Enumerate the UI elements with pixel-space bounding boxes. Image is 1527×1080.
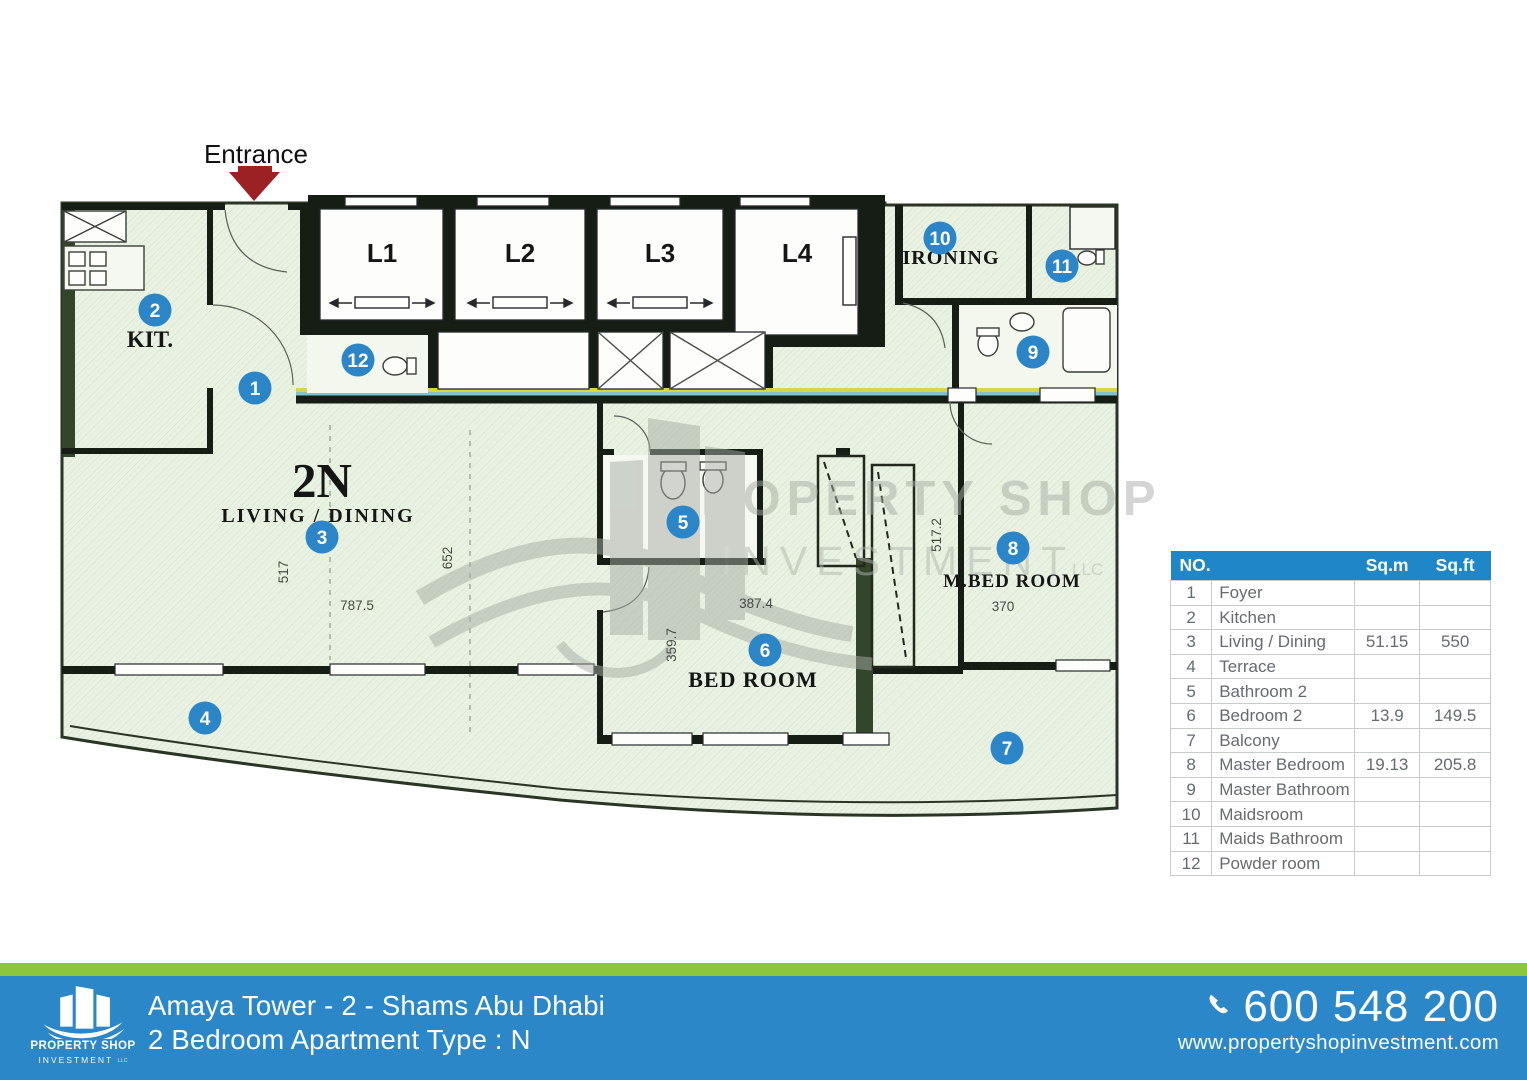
row-name: Powder room	[1212, 851, 1355, 876]
svg-text:11: 11	[1052, 257, 1073, 278]
table-row: 3Living / Dining51.15550	[1171, 630, 1491, 655]
logo-investment: INVESTMENT	[38, 1055, 113, 1065]
row-sqft: 205.8	[1420, 753, 1491, 778]
dim-living-mid: 652	[440, 547, 455, 570]
room-marker-11: 11	[1046, 250, 1079, 283]
room-marker-7: 7	[991, 732, 1024, 765]
row-name: Bathroom 2	[1212, 679, 1355, 704]
table-row: 10Maidsroom	[1171, 802, 1491, 827]
table-row: 1Foyer	[1171, 581, 1491, 606]
svg-text:8: 8	[1008, 539, 1019, 560]
label-lift-4: L4	[782, 238, 813, 268]
header-sqm: Sq.m	[1354, 551, 1419, 581]
svg-text:1: 1	[250, 379, 261, 400]
room-marker-10: 10	[924, 222, 957, 255]
logo-line2: INVESTMENT LLC	[20, 1055, 146, 1065]
room-marker-12: 12	[342, 344, 375, 377]
listing-title-block: Amaya Tower - 2 - Shams Abu Dhabi 2 Bedr…	[148, 989, 605, 1057]
svg-text:3: 3	[317, 528, 328, 549]
label-lift-1: L1	[367, 238, 397, 268]
row-name: Master Bedroom	[1212, 753, 1355, 778]
row-no: 1	[1171, 581, 1212, 606]
row-name: Maids Bathroom	[1212, 826, 1355, 851]
row-sqft	[1420, 728, 1491, 753]
room-marker-8: 8	[997, 532, 1030, 565]
header-no: NO.	[1171, 551, 1355, 581]
svg-text:4: 4	[200, 709, 211, 730]
row-no: 10	[1171, 802, 1212, 827]
table-row: 6Bedroom 213.9149.5	[1171, 703, 1491, 728]
row-sqm: 51.15	[1354, 630, 1419, 655]
row-no: 9	[1171, 777, 1212, 802]
floorplan-flyer: { "plan": { "entrance_label": "Entrance"…	[0, 0, 1527, 1080]
dim-master-w: 370	[992, 599, 1015, 614]
row-name: Living / Dining	[1212, 630, 1355, 655]
svg-text:6: 6	[760, 641, 771, 662]
table-row: 9Master Bathroom	[1171, 777, 1491, 802]
row-sqft	[1420, 826, 1491, 851]
row-sqft	[1420, 802, 1491, 827]
footer: PROPERTY SHOP INVESTMENT LLC Amaya Tower…	[0, 963, 1527, 1080]
room-marker-4: 4	[189, 702, 222, 735]
svg-text:12: 12	[347, 351, 368, 372]
row-sqm	[1354, 654, 1419, 679]
dim-bed-h: 359.7	[664, 628, 679, 662]
row-name: Terrace	[1212, 654, 1355, 679]
row-no: 2	[1171, 605, 1212, 630]
row-no: 6	[1171, 703, 1212, 728]
dim-bed-w: 387.4	[739, 596, 773, 611]
row-name: Balcony	[1212, 728, 1355, 753]
svg-text:5: 5	[678, 513, 689, 534]
row-name: Maidsroom	[1212, 802, 1355, 827]
label-lift-2: L2	[505, 238, 535, 268]
svg-text:7: 7	[1002, 739, 1013, 760]
buildings-wave-icon	[31, 981, 135, 1039]
label-lift-3: L3	[645, 238, 675, 268]
table-row: 8Master Bedroom19.13205.8	[1171, 753, 1491, 778]
row-name: Master Bathroom	[1212, 777, 1355, 802]
svg-text:10: 10	[929, 229, 950, 250]
table-row: 7Balcony	[1171, 728, 1491, 753]
table-header-row: NO. Sq.m Sq.ft	[1171, 551, 1491, 581]
table-row: 2Kitchen	[1171, 605, 1491, 630]
svg-text:2: 2	[150, 301, 161, 322]
floor-plan: PROPERTY SHOP INVESTMENT LLC Entrance KI…	[0, 0, 1527, 1080]
footer-green-strip	[0, 963, 1527, 976]
area-schedule-table: NO. Sq.m Sq.ft 1Foyer 2Kitchen 3Living /…	[1170, 551, 1491, 876]
row-name: Foyer	[1212, 581, 1355, 606]
row-name: Bedroom 2	[1212, 703, 1355, 728]
footer-bar: PROPERTY SHOP INVESTMENT LLC Amaya Tower…	[0, 976, 1527, 1080]
dim-living-h: 517	[276, 561, 291, 584]
project-name: Amaya Tower - 2 - Shams Abu Dhabi	[148, 989, 605, 1023]
dim-master-h: 517.2	[929, 518, 944, 552]
contact-block: 600 548 200 www.propertyshopinvestment.c…	[1178, 984, 1499, 1055]
row-name: Kitchen	[1212, 605, 1355, 630]
row-sqft	[1420, 679, 1491, 704]
website-url: www.propertyshopinvestment.com	[1178, 1031, 1499, 1055]
company-logo: PROPERTY SHOP INVESTMENT LLC	[20, 981, 146, 1065]
room-marker-5: 5	[667, 506, 700, 539]
row-sqft	[1420, 605, 1491, 630]
label-kitchen: KIT.	[127, 327, 173, 352]
row-sqm	[1354, 581, 1419, 606]
row-sqm	[1354, 851, 1419, 876]
row-sqm	[1354, 826, 1419, 851]
label-unit-code: 2N	[292, 453, 352, 508]
table-row: 12Powder room	[1171, 851, 1491, 876]
dim-living-w: 787.5	[340, 598, 374, 613]
row-no: 8	[1171, 753, 1212, 778]
logo-llc: LLC	[117, 1058, 127, 1064]
table-row: 4Terrace	[1171, 654, 1491, 679]
svg-text:9: 9	[1028, 343, 1039, 364]
row-sqm	[1354, 679, 1419, 704]
row-no: 12	[1171, 851, 1212, 876]
entrance-callout: Entrance	[204, 139, 308, 201]
row-sqm	[1354, 728, 1419, 753]
row-sqft	[1420, 581, 1491, 606]
phone-number: 600 548 200	[1243, 984, 1499, 1030]
phone-icon	[1203, 992, 1233, 1022]
label-ironing: IRONING	[902, 247, 999, 269]
entrance-label: Entrance	[204, 139, 308, 169]
unit-type: 2 Bedroom Apartment Type : N	[148, 1023, 605, 1057]
row-sqm: 13.9	[1354, 703, 1419, 728]
logo-line1: PROPERTY SHOP	[20, 1040, 146, 1052]
table-row: 5Bathroom 2	[1171, 679, 1491, 704]
row-no: 7	[1171, 728, 1212, 753]
row-sqft: 550	[1420, 630, 1491, 655]
room-marker-3: 3	[306, 521, 339, 554]
row-sqft	[1420, 851, 1491, 876]
row-sqm: 19.13	[1354, 753, 1419, 778]
row-sqm	[1354, 605, 1419, 630]
watermark-line1: PROPERTY SHOP	[662, 472, 1161, 526]
row-sqm	[1354, 777, 1419, 802]
table-row: 11Maids Bathroom	[1171, 826, 1491, 851]
row-sqft	[1420, 654, 1491, 679]
row-no: 3	[1171, 630, 1212, 655]
header-sqft: Sq.ft	[1420, 551, 1491, 581]
row-sqm	[1354, 802, 1419, 827]
row-sqft	[1420, 777, 1491, 802]
room-marker-6: 6	[749, 634, 782, 667]
row-no: 5	[1171, 679, 1212, 704]
label-master-bedroom: M.BED ROOM	[943, 571, 1081, 592]
room-marker-2: 2	[139, 294, 172, 327]
label-bedroom: BED ROOM	[688, 667, 818, 692]
entrance-arrow-icon	[229, 166, 280, 201]
row-no: 4	[1171, 654, 1212, 679]
row-sqft: 149.5	[1420, 703, 1491, 728]
row-no: 11	[1171, 826, 1212, 851]
room-marker-9: 9	[1017, 336, 1050, 369]
room-marker-1: 1	[239, 372, 272, 405]
